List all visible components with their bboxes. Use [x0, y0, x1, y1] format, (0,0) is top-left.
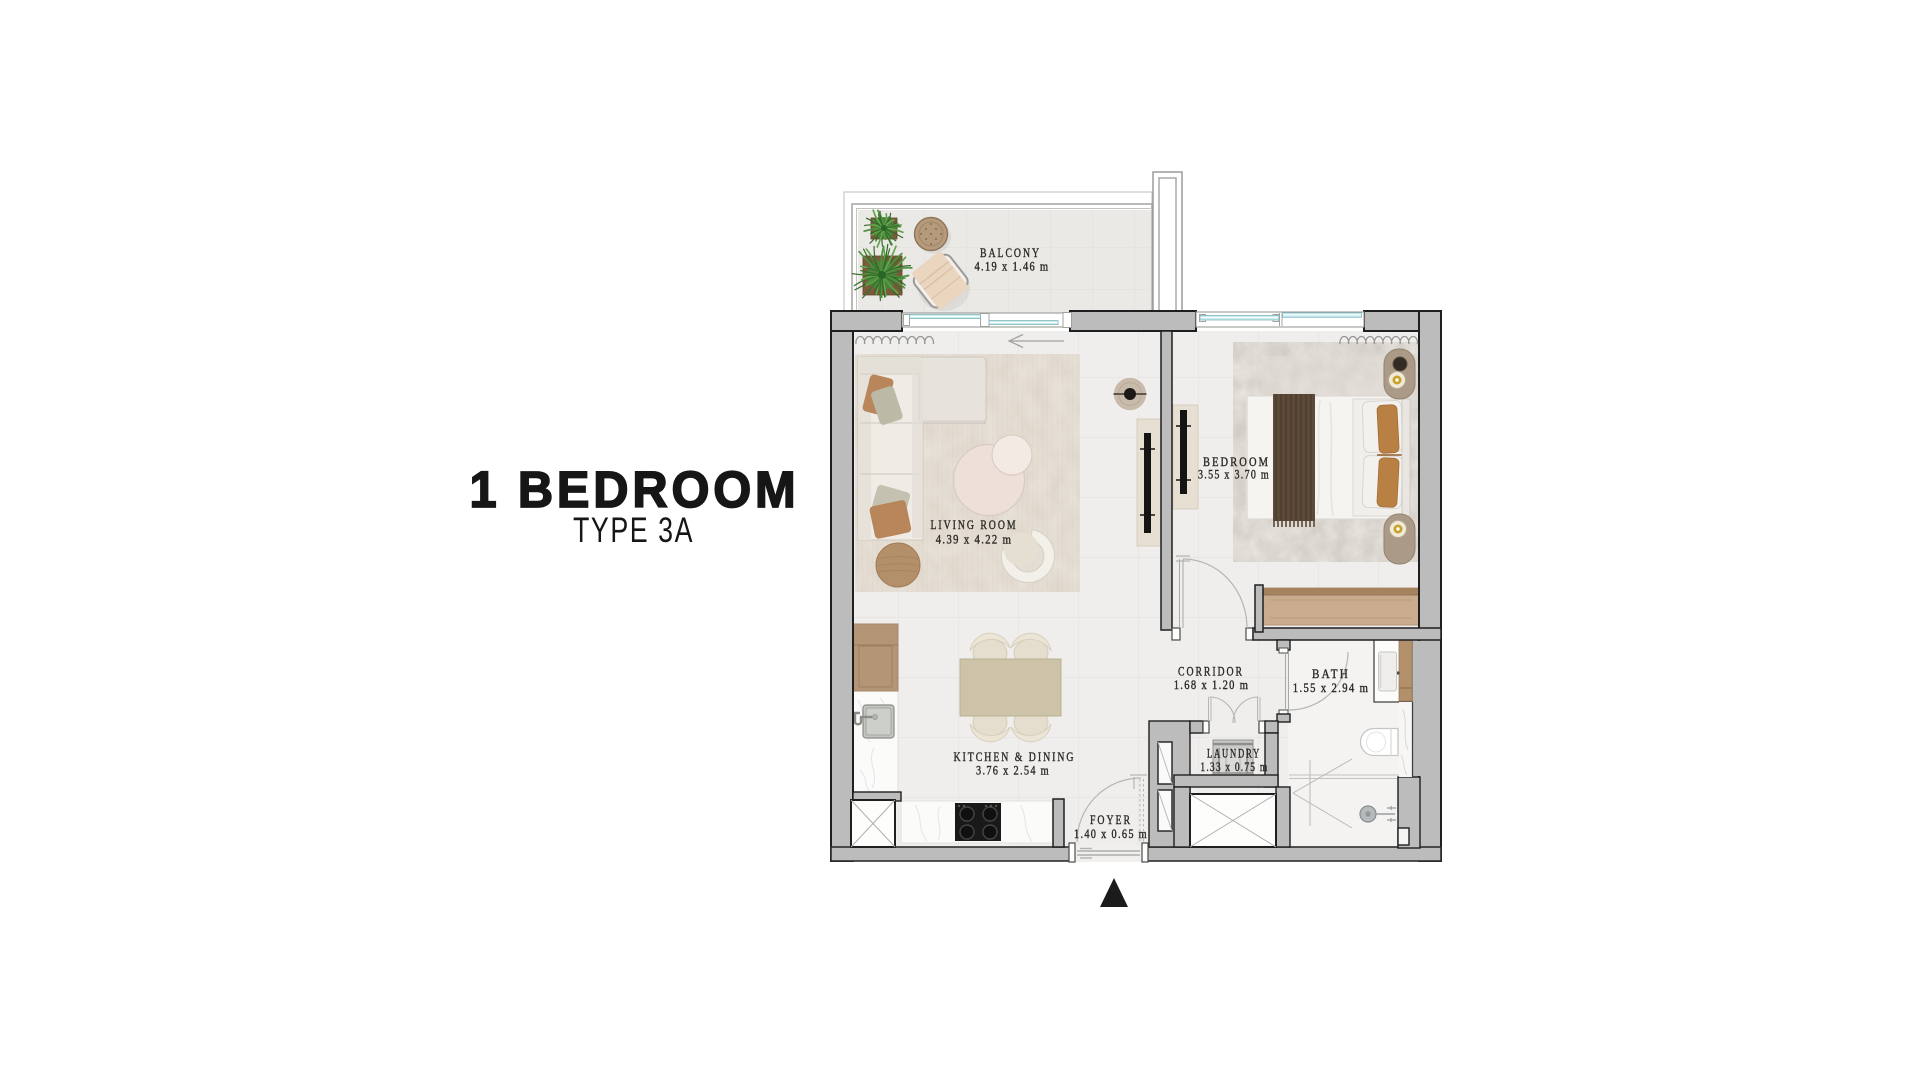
svg-text:4.39 x 4.22 m: 4.39 x 4.22 m: [936, 533, 1013, 547]
svg-text:4.19 x 1.46 m: 4.19 x 1.46 m: [975, 260, 1050, 274]
svg-text:1 BEDROOM: 1 BEDROOM: [470, 461, 800, 518]
svg-text:BALCONY: BALCONY: [980, 245, 1041, 260]
svg-text:TYPE 3A: TYPE 3A: [573, 511, 694, 550]
svg-text:1.33 x 0.75 m: 1.33 x 0.75 m: [1200, 760, 1268, 774]
svg-text:LAUNDRY: LAUNDRY: [1207, 746, 1261, 761]
svg-text:BATH: BATH: [1312, 666, 1350, 681]
svg-text:3.76 x 2.54 m: 3.76 x 2.54 m: [976, 764, 1050, 778]
svg-text:1.55 x 2.94 m: 1.55 x 2.94 m: [1293, 681, 1369, 695]
svg-text:3.55 x 3.70 m: 3.55 x 3.70 m: [1198, 468, 1270, 482]
svg-text:1.40 x 0.65 m: 1.40 x 0.65 m: [1074, 827, 1148, 841]
svg-text:FOYER: FOYER: [1090, 812, 1132, 827]
svg-text:1.68 x 1.20 m: 1.68 x 1.20 m: [1174, 678, 1250, 692]
svg-text:LIVING ROOM: LIVING ROOM: [931, 517, 1018, 532]
svg-text:KITCHEN & DINING: KITCHEN & DINING: [954, 749, 1076, 764]
svg-text:CORRIDOR: CORRIDOR: [1178, 664, 1244, 679]
